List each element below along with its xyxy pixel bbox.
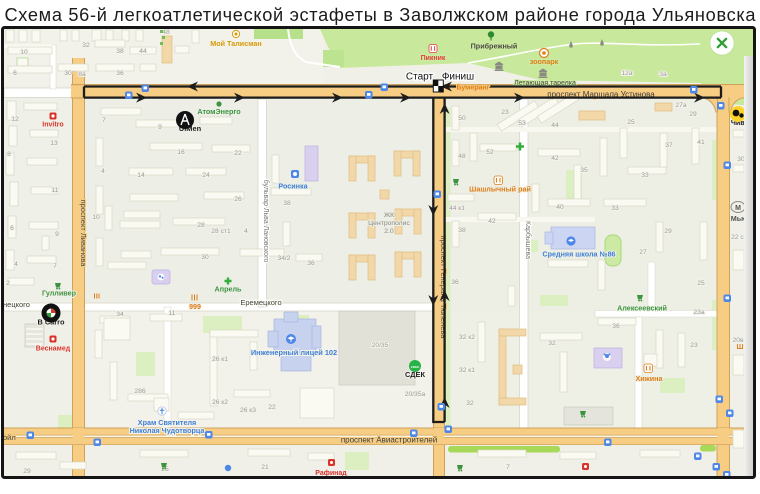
svg-text:CDEK: CDEK	[411, 365, 420, 369]
svg-text:32: 32	[466, 400, 474, 407]
svg-text:999: 999	[189, 304, 201, 311]
svg-text:27а: 27а	[675, 102, 686, 109]
svg-text:36: 36	[116, 70, 124, 77]
svg-text:42: 42	[551, 155, 559, 162]
svg-text:32: 32	[548, 340, 556, 347]
svg-text:36: 36	[612, 323, 620, 330]
svg-text:23: 23	[501, 109, 509, 116]
svg-text:16: 16	[177, 149, 185, 156]
svg-text:27: 27	[639, 249, 647, 256]
svg-text:36: 36	[307, 260, 315, 267]
svg-text:34: 34	[116, 311, 124, 318]
svg-text:12а: 12а	[621, 70, 632, 77]
svg-text:32 к2: 32 к2	[459, 334, 475, 341]
svg-text:29: 29	[23, 468, 31, 475]
svg-text:26: 26	[234, 196, 242, 203]
svg-text:28 ст1: 28 ст1	[211, 228, 231, 235]
svg-text:29: 29	[664, 228, 672, 235]
svg-text:Росинка: Росинка	[278, 182, 308, 191]
svg-text:40: 40	[556, 204, 564, 211]
svg-text:34/2: 34/2	[277, 255, 290, 262]
svg-text:Пикник: Пикник	[421, 55, 446, 62]
svg-text:12: 12	[11, 116, 19, 123]
svg-text:20/35а: 20/35а	[405, 391, 426, 398]
svg-text:36: 36	[451, 279, 459, 286]
svg-text:4: 4	[244, 228, 248, 235]
svg-text:28: 28	[197, 222, 205, 229]
svg-text:286: 286	[134, 388, 145, 395]
svg-text:4: 4	[14, 261, 18, 268]
svg-text:6: 6	[10, 225, 14, 232]
svg-text:Схема 56-й легкоатлетической э: Схема 56-й легкоатлетической эстафеты в …	[5, 5, 757, 25]
svg-text:М: М	[735, 205, 741, 212]
svg-text:20в: 20в	[733, 337, 744, 344]
svg-text:23а: 23а	[693, 309, 704, 316]
svg-text:Бумеранг: Бумеранг	[456, 85, 489, 92]
svg-text:41: 41	[697, 139, 705, 146]
svg-text:30: 30	[201, 254, 209, 261]
svg-text:Шашлычный рай: Шашлычный рай	[469, 185, 531, 194]
svg-text:ойл: ойл	[3, 433, 16, 442]
svg-text:20/35: 20/35	[372, 342, 389, 349]
svg-text:Алексеевский: Алексеевский	[617, 304, 667, 313]
svg-text:ЖК: ЖК	[384, 212, 394, 219]
svg-text:48: 48	[458, 153, 466, 160]
svg-text:Еремецкого: Еремецкого	[240, 298, 281, 307]
svg-text:Хижина: Хижина	[635, 374, 663, 383]
svg-text:Апрель: Апрель	[215, 285, 242, 294]
svg-text:7: 7	[506, 464, 510, 471]
svg-text:2: 2	[6, 280, 10, 287]
svg-text:проспект Авиастроителей: проспект Авиастроителей	[341, 436, 437, 445]
svg-text:зоопарк: зоопарк	[530, 57, 559, 66]
svg-text:Финиш: Финиш	[442, 72, 474, 83]
svg-text:50: 50	[458, 115, 466, 122]
svg-text:11: 11	[169, 310, 176, 317]
svg-text:38: 38	[458, 227, 466, 234]
svg-text:Прибрежный: Прибрежный	[471, 42, 518, 51]
svg-text:23: 23	[690, 342, 698, 349]
svg-text:25: 25	[627, 119, 635, 126]
svg-text:44 к1: 44 к1	[449, 205, 465, 212]
svg-text:Николая Чудотворца: Николая Чудотворца	[130, 426, 206, 435]
svg-text:30: 30	[64, 70, 72, 77]
svg-text:29: 29	[689, 111, 697, 118]
svg-text:26 к3: 26 к3	[240, 407, 256, 414]
svg-text:нецкого: нецкого	[3, 300, 30, 309]
svg-text:32: 32	[82, 42, 90, 49]
svg-text:Карбышева: Карбышева	[524, 221, 532, 259]
svg-text:37: 37	[665, 142, 673, 149]
svg-text:53: 53	[518, 120, 526, 127]
svg-text:7: 7	[102, 117, 106, 124]
svg-text:38: 38	[116, 48, 124, 55]
svg-text:3а: 3а	[659, 71, 667, 78]
svg-text:10: 10	[92, 214, 100, 221]
svg-text:26 к2: 26 к2	[212, 399, 228, 406]
svg-text:Гулливер: Гулливер	[42, 289, 77, 298]
svg-text:33: 33	[641, 172, 649, 179]
svg-text:21: 21	[261, 464, 269, 471]
svg-text:32 к1: 32 к1	[459, 367, 475, 374]
svg-text:44: 44	[139, 48, 147, 55]
svg-text:44: 44	[551, 122, 559, 129]
svg-text:Рафинад: Рафинад	[315, 470, 347, 477]
svg-text:35: 35	[580, 167, 588, 174]
svg-text:Веснамед: Веснамед	[36, 346, 71, 353]
svg-text:11: 11	[52, 187, 59, 194]
svg-text:проспект Ливанова: проспект Ливанова	[79, 200, 88, 268]
svg-text:26 к1: 26 к1	[212, 356, 228, 363]
svg-text:АтомЭнерго: АтомЭнерго	[197, 107, 241, 116]
svg-text:30: 30	[737, 156, 745, 163]
svg-text:Старт: Старт	[406, 72, 434, 83]
svg-text:8: 8	[7, 151, 11, 158]
svg-text:7: 7	[53, 263, 57, 270]
svg-text:9: 9	[55, 231, 59, 238]
svg-text:бульвар Льва Лановского: бульвар Льва Лановского	[262, 180, 270, 263]
svg-text:25: 25	[697, 280, 705, 287]
svg-text:4: 4	[101, 168, 105, 175]
svg-text:48: 48	[162, 29, 170, 36]
svg-text:52: 52	[486, 149, 494, 156]
svg-text:Средняя школа №86: Средняя школа №86	[542, 250, 615, 259]
svg-text:33: 33	[611, 205, 619, 212]
svg-text:6: 6	[13, 70, 17, 77]
svg-text:24: 24	[202, 172, 210, 179]
svg-text:9: 9	[158, 124, 162, 131]
svg-text:2.0: 2.0	[384, 228, 394, 235]
svg-text:Инженерный лицей 102: Инженерный лицей 102	[251, 348, 337, 357]
svg-text:13: 13	[50, 140, 58, 147]
svg-text:38: 38	[283, 200, 291, 207]
svg-text:8а: 8а	[78, 71, 86, 78]
svg-text:10: 10	[20, 49, 28, 56]
svg-text:22: 22	[268, 404, 276, 411]
svg-text:Ш: Ш	[736, 344, 743, 351]
svg-text:42: 42	[488, 218, 496, 225]
svg-text:14: 14	[137, 172, 145, 179]
svg-text:Центрополис: Центрополис	[368, 220, 410, 227]
svg-text:22: 22	[234, 150, 242, 157]
svg-text:Invitro: Invitro	[42, 122, 63, 129]
svg-text:Мой Талисман: Мой Талисман	[210, 39, 262, 48]
